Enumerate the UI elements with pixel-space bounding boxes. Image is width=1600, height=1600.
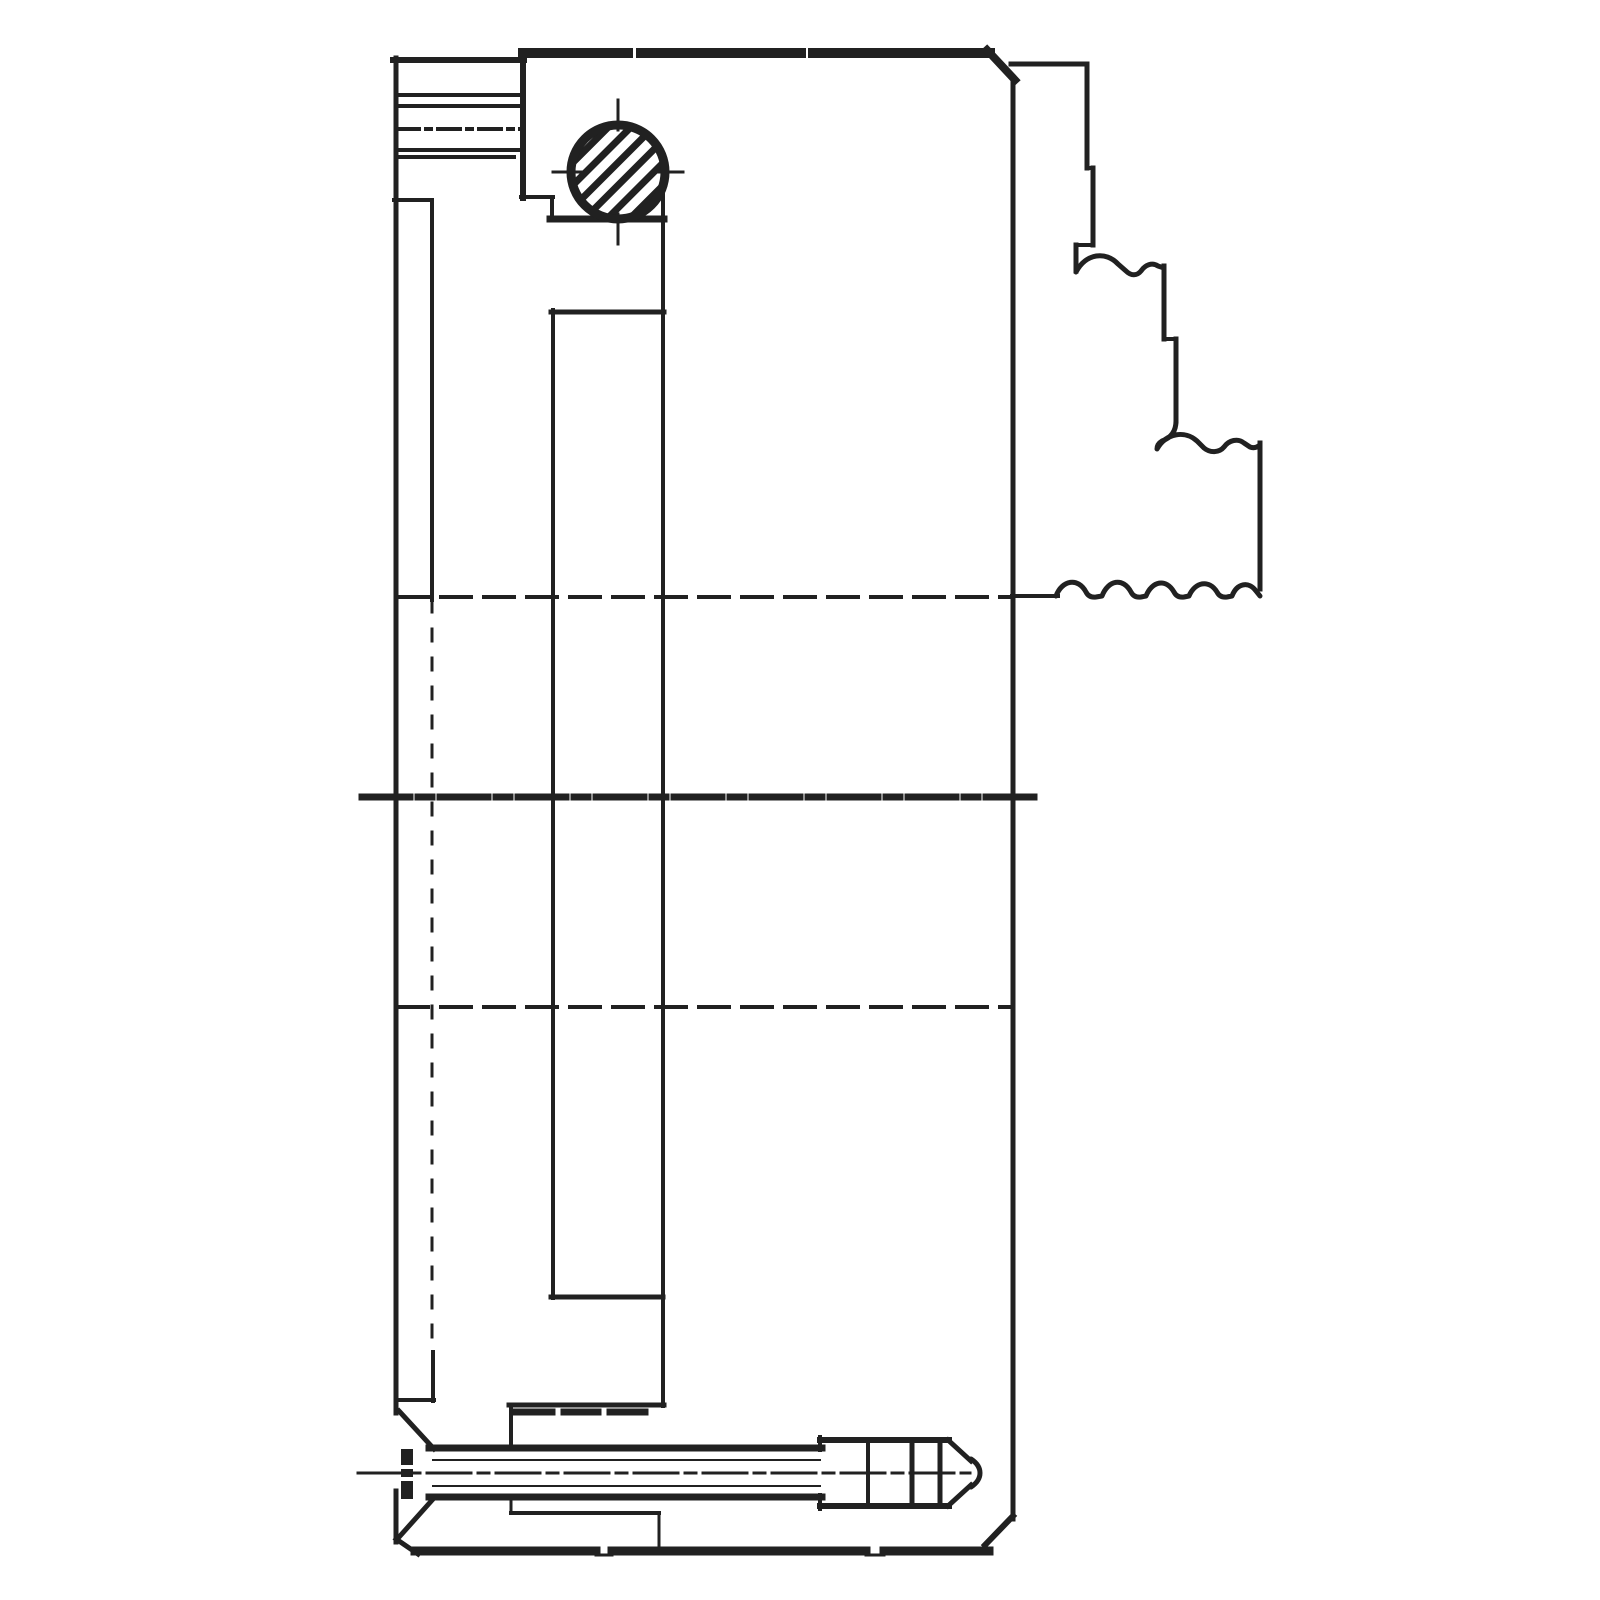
chuck-cross-section-drawing bbox=[0, 0, 1600, 1600]
jaw-outline bbox=[1011, 64, 1260, 597]
scanned-drawing-page bbox=[0, 0, 1600, 1600]
body-outline bbox=[393, 50, 1015, 1555]
hidden-lines bbox=[398, 597, 1011, 1352]
centerlines bbox=[358, 129, 1037, 1473]
screw-section bbox=[399, 1411, 980, 1549]
